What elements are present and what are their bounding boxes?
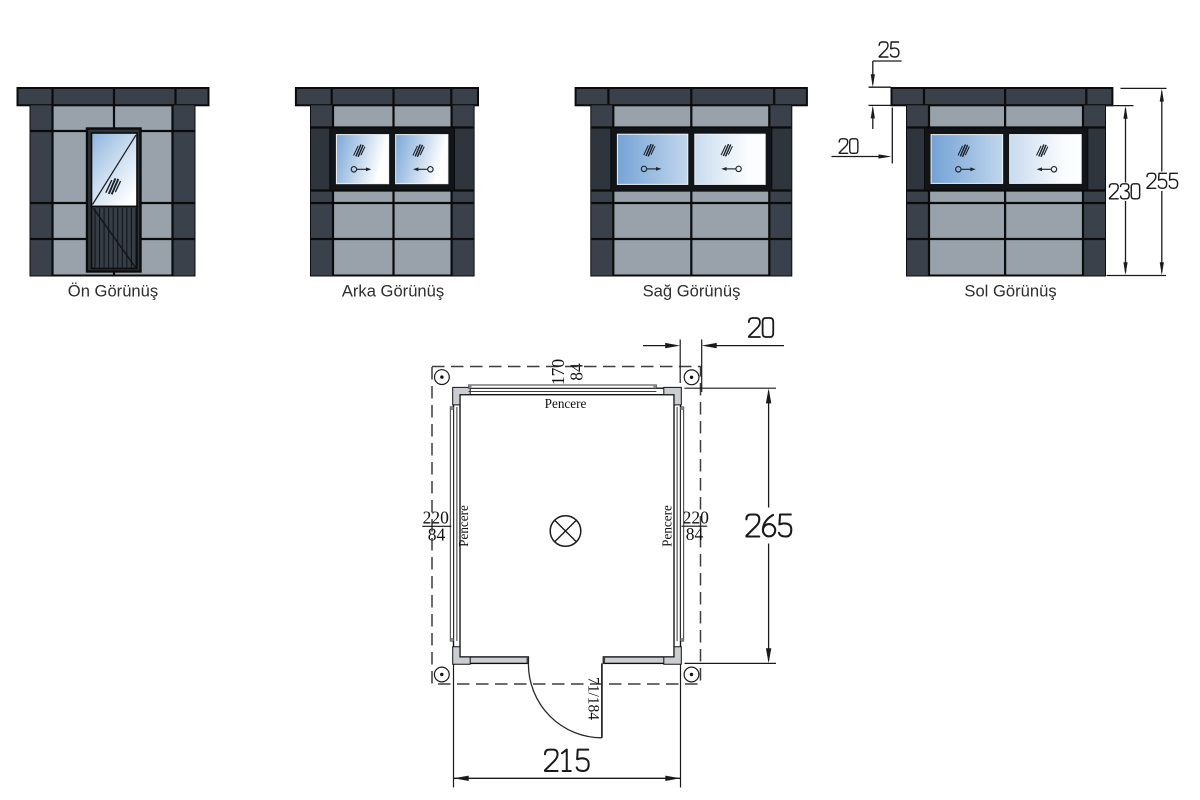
svg-text:Pencere: Pencere	[456, 505, 471, 547]
svg-text:Ön Görünüş: Ön Görünüş	[68, 282, 158, 301]
svg-text:Pencere: Pencere	[545, 396, 587, 411]
svg-text:Sol Görünüş: Sol Görünüş	[964, 282, 1056, 301]
svg-text:Sağ Görünüş: Sağ Görünüş	[643, 282, 741, 301]
svg-text:71/184: 71/184	[585, 677, 602, 720]
svg-text:84: 84	[567, 363, 587, 381]
svg-text:Arka Görünüş: Arka Görünüş	[342, 282, 444, 301]
svg-text:84: 84	[428, 524, 446, 544]
svg-text:170: 170	[548, 359, 568, 386]
svg-text:84: 84	[686, 524, 704, 544]
svg-text:Pencere: Pencere	[660, 505, 675, 547]
